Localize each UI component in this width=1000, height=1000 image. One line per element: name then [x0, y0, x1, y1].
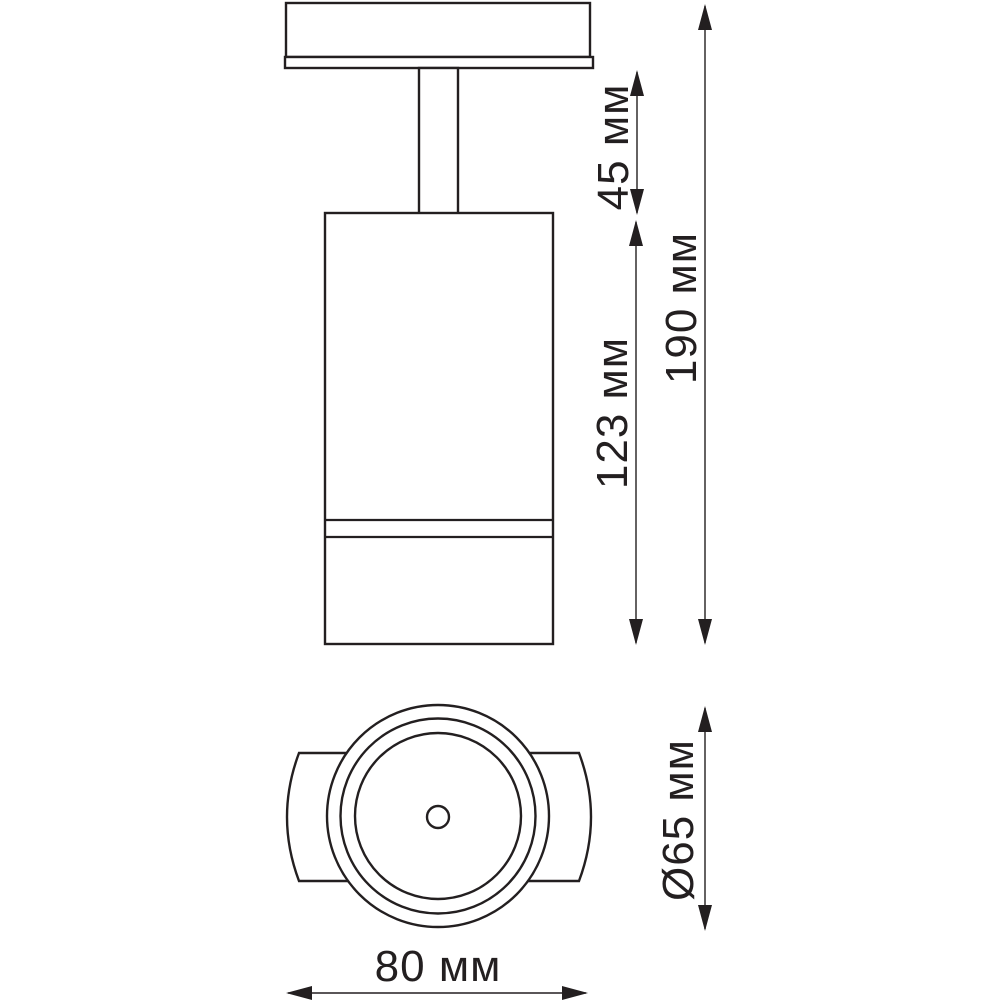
technical-drawing-page: 45 мм 123 мм 190 мм Ø65 мм: [0, 0, 1000, 1000]
arrowhead-up-icon: [629, 220, 643, 246]
side-view: [285, 3, 593, 644]
mounting-plate: [286, 3, 590, 57]
arrowhead-down-icon: [629, 619, 643, 645]
dim-label-diameter: Ø65 мм: [654, 739, 703, 901]
center-hole: [427, 806, 449, 828]
arrowhead-up-icon: [698, 4, 712, 30]
arrowhead-left-icon: [286, 986, 312, 1000]
lamp-body: [325, 213, 553, 644]
dim-label-total-height: 190 мм: [657, 232, 706, 384]
mounting-flange: [285, 57, 593, 68]
arrowhead-down-icon: [698, 905, 712, 931]
dimension-total-height: 190 мм: [657, 4, 712, 645]
stem: [419, 68, 458, 214]
arrowhead-right-icon: [562, 986, 588, 1000]
dim-label-stem-height: 45 мм: [589, 84, 638, 211]
arrowhead-up-icon: [698, 706, 712, 732]
dimension-diameter: Ø65 мм: [654, 706, 712, 931]
dim-label-body-height: 123 мм: [588, 337, 637, 489]
dimension-width: 80 мм: [286, 942, 588, 1000]
dimension-body-height: 123 мм: [588, 220, 643, 645]
spotlight-dimension-drawing: 45 мм 123 мм 190 мм Ø65 мм: [0, 0, 1000, 1000]
dim-label-width: 80 мм: [375, 942, 502, 991]
bottom-view: [287, 705, 591, 927]
arrowhead-down-icon: [698, 619, 712, 645]
dimension-stem-height: 45 мм: [589, 70, 644, 215]
